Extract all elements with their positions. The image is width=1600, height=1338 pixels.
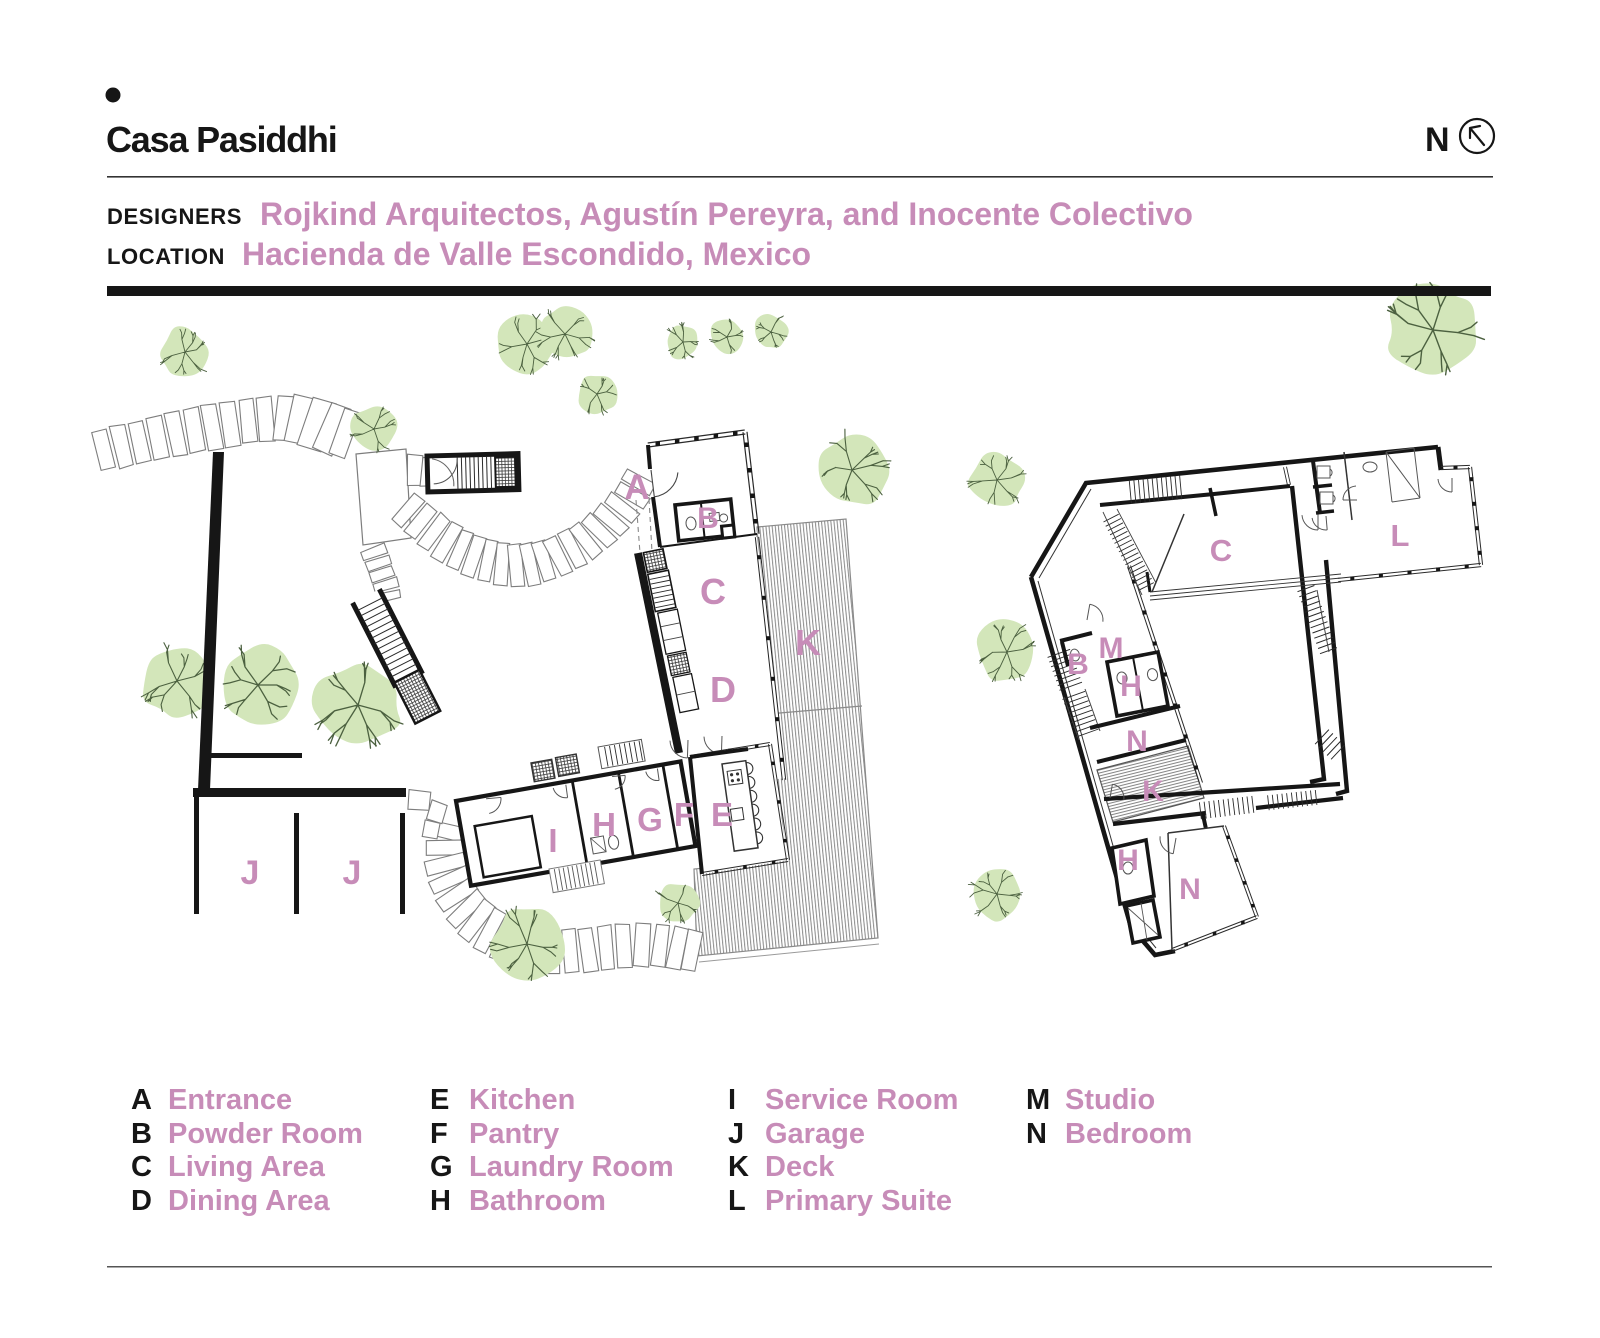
- svg-text:Rojkind Arquitectos, Agustín P: Rojkind Arquitectos, Agustín Pereyra, an…: [260, 196, 1193, 232]
- svg-text:DESIGNERS: DESIGNERS: [107, 204, 242, 229]
- svg-text:I: I: [728, 1084, 736, 1116]
- svg-text:Primary Suite: Primary Suite: [765, 1185, 952, 1217]
- svg-text:E: E: [711, 796, 733, 833]
- svg-text:Dining Area: Dining Area: [168, 1185, 331, 1217]
- svg-text:Bedroom: Bedroom: [1065, 1118, 1192, 1150]
- svg-text:Pantry: Pantry: [469, 1118, 559, 1150]
- svg-text:Hacienda de Valle Escondido, M: Hacienda de Valle Escondido, Mexico: [242, 236, 811, 272]
- svg-text:Studio: Studio: [1065, 1084, 1155, 1116]
- svg-text:B: B: [697, 502, 719, 535]
- svg-text:LOCATION: LOCATION: [107, 244, 225, 269]
- svg-text:H: H: [1117, 844, 1139, 877]
- svg-text:Service Room: Service Room: [765, 1084, 958, 1116]
- svg-text:K: K: [728, 1151, 749, 1183]
- svg-text:H: H: [430, 1185, 451, 1217]
- svg-text:J: J: [343, 854, 362, 892]
- svg-text:Living Area: Living Area: [168, 1151, 326, 1183]
- svg-text:I: I: [548, 822, 557, 859]
- svg-text:D: D: [710, 669, 736, 710]
- svg-text:G: G: [637, 801, 663, 838]
- svg-text:Kitchen: Kitchen: [469, 1084, 575, 1116]
- svg-text:N: N: [1425, 121, 1450, 159]
- svg-text:C: C: [700, 571, 726, 612]
- svg-text:L: L: [1391, 518, 1410, 553]
- svg-text:F: F: [430, 1118, 448, 1150]
- svg-text:L: L: [728, 1185, 746, 1217]
- svg-text:E: E: [430, 1084, 449, 1116]
- svg-text:J: J: [728, 1118, 744, 1150]
- svg-text:F: F: [674, 796, 694, 833]
- svg-text:M: M: [1099, 632, 1124, 665]
- svg-text:Casa Pasiddhi: Casa Pasiddhi: [106, 119, 337, 160]
- svg-text:Powder Room: Powder Room: [168, 1118, 363, 1150]
- svg-text:A: A: [624, 468, 649, 507]
- svg-text:B: B: [1067, 648, 1089, 681]
- svg-text:K: K: [795, 622, 821, 663]
- svg-text:G: G: [430, 1151, 453, 1183]
- svg-text:D: D: [131, 1185, 152, 1217]
- svg-text:Deck: Deck: [765, 1151, 835, 1183]
- svg-text:H: H: [592, 806, 616, 843]
- svg-text:N: N: [1179, 873, 1201, 906]
- svg-text:Entrance: Entrance: [168, 1084, 292, 1116]
- svg-text:Laundry Room: Laundry Room: [469, 1151, 674, 1183]
- svg-text:A: A: [131, 1084, 152, 1116]
- svg-text:N: N: [1026, 1118, 1047, 1150]
- svg-text:J: J: [241, 854, 260, 892]
- svg-text:C: C: [131, 1151, 152, 1183]
- svg-text:B: B: [131, 1118, 152, 1150]
- svg-text:H: H: [1120, 670, 1142, 703]
- svg-text:K: K: [1142, 775, 1164, 808]
- svg-text:C: C: [1210, 533, 1232, 568]
- svg-text:N: N: [1126, 725, 1148, 758]
- svg-text:Bathroom: Bathroom: [469, 1185, 606, 1217]
- svg-text:M: M: [1026, 1084, 1050, 1116]
- svg-text:Garage: Garage: [765, 1118, 865, 1150]
